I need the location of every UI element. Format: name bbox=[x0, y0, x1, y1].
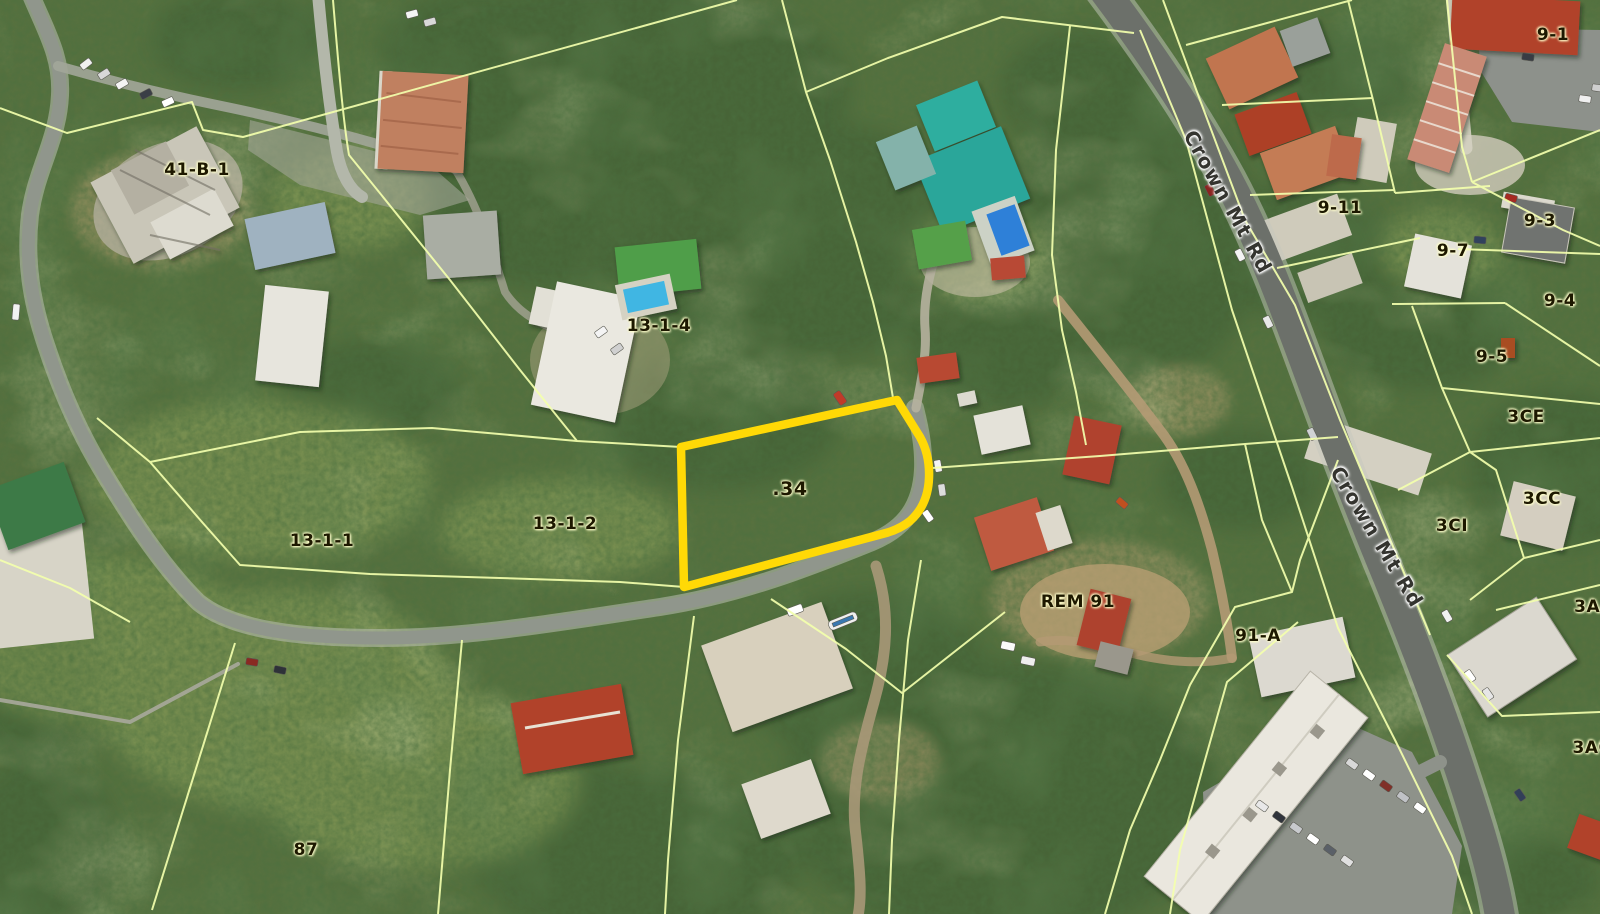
satellite-imagery bbox=[0, 0, 1600, 914]
large-red-building-top-right bbox=[1450, 0, 1581, 55]
gray-barn bbox=[423, 210, 501, 279]
rust-shed-9-5 bbox=[1501, 338, 1515, 358]
red-roof-patch bbox=[990, 256, 1026, 281]
white-long-building bbox=[255, 285, 329, 387]
red-roof-building-top bbox=[374, 71, 468, 173]
aerial-map-canvas[interactable]: 41-B-113-1-413-1-113-1-2.3487REM 9191-A9… bbox=[0, 0, 1600, 914]
red-shed bbox=[916, 352, 959, 383]
